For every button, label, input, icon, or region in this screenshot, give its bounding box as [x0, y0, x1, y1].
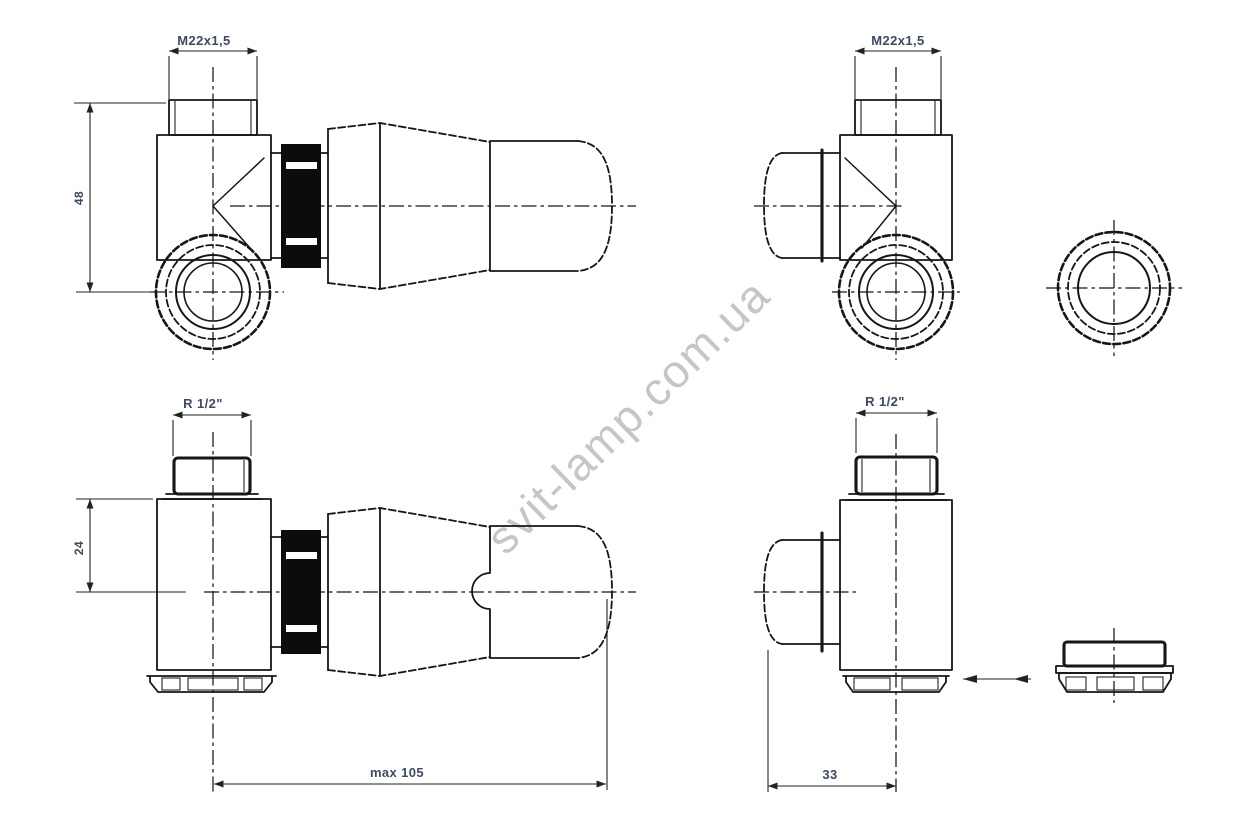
- drawing-canvas: svit-lamp.com.ua M22x1,5 48: [0, 0, 1256, 828]
- thread-stub: [855, 100, 941, 135]
- extension-lines: [74, 103, 166, 292]
- extension-lines: [76, 499, 186, 592]
- nut-slot: [1097, 677, 1134, 690]
- view-top-right-valve-side: M22x1,5: [754, 33, 960, 360]
- view-bottom-left-valve-side: R 1/2" 24: [72, 396, 636, 792]
- view-bottom-right-valve-side: R 1/2" 33: [754, 394, 1031, 792]
- thread-lines: [861, 100, 935, 135]
- thread-stub: [174, 458, 250, 494]
- extension-lines: [855, 56, 941, 99]
- length-dimension-label: max 105: [370, 765, 424, 780]
- height-dimension-label: 48: [72, 191, 86, 205]
- thread-dimension-label: R 1/2": [865, 394, 905, 409]
- offset-dimension-label: 33: [822, 767, 837, 782]
- thread-dimension-label: M22x1,5: [177, 33, 230, 48]
- valve-body: [157, 499, 271, 670]
- valve-body: [157, 135, 271, 260]
- nut-slot: [1066, 677, 1086, 690]
- view-top-left-valve-side: M22x1,5 48: [72, 33, 636, 360]
- union-nut: [147, 676, 276, 692]
- valve-technical-drawing: M22x1,5 48: [0, 0, 1256, 828]
- assembly-arrow-icon: [963, 675, 1031, 683]
- thread-dimension-label: R 1/2": [183, 396, 223, 411]
- thread-dimension-label: M22x1,5: [871, 33, 924, 48]
- coupling-nut: [281, 144, 328, 268]
- offset-dimension-label: 24: [72, 541, 86, 555]
- nut-slotted-band: [1059, 673, 1171, 692]
- coupling-nut: [281, 530, 328, 654]
- ring-nut-front-view: [1046, 220, 1182, 356]
- extension-lines: [173, 420, 251, 456]
- nut-slot: [1143, 677, 1163, 690]
- ring-nut-side-view: [1056, 628, 1173, 703]
- crosshair-centerlines: [1046, 220, 1182, 356]
